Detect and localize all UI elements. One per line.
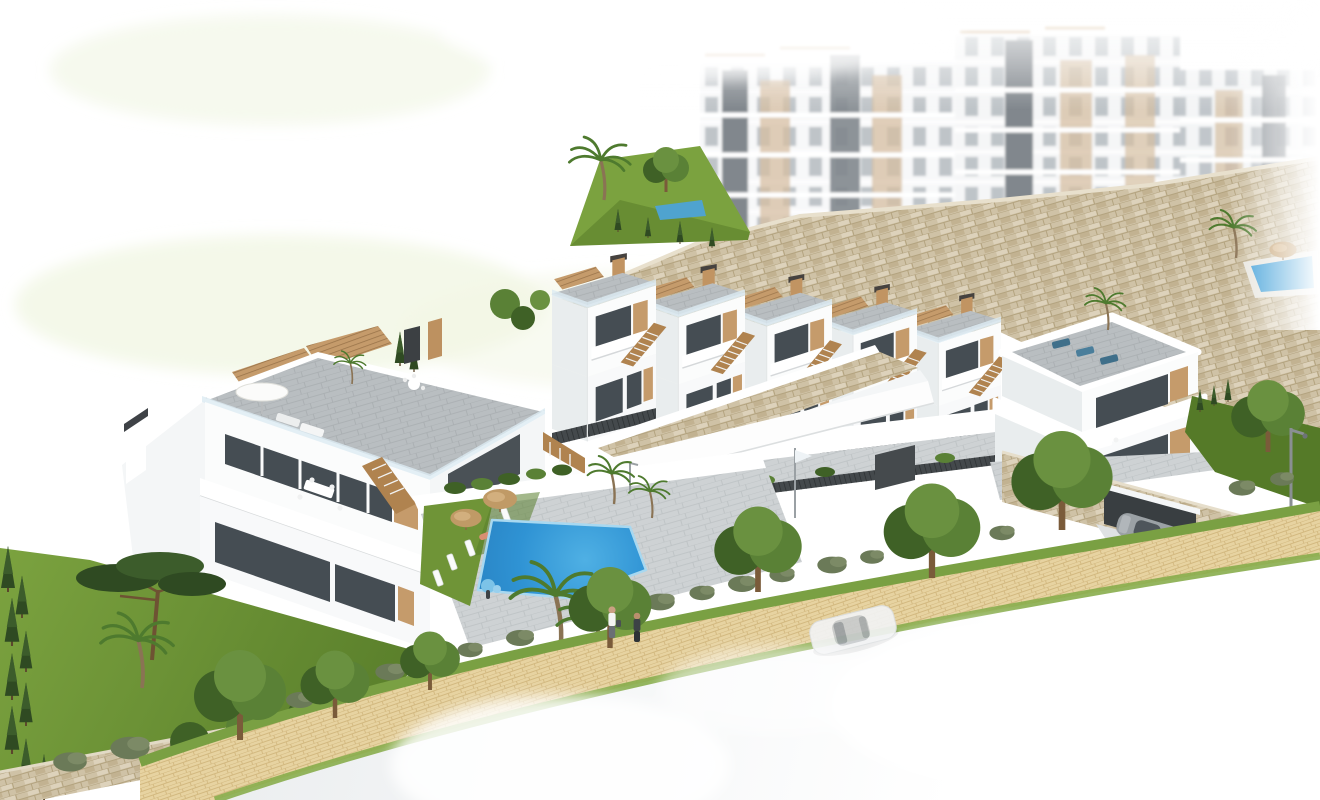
render-canvas (0, 0, 1320, 800)
white-parasol (236, 383, 288, 401)
pedestrian-2 (634, 613, 641, 642)
scene-svg (0, 0, 1320, 800)
townhouse-unit-1 (552, 253, 666, 445)
pool-person (486, 590, 490, 599)
